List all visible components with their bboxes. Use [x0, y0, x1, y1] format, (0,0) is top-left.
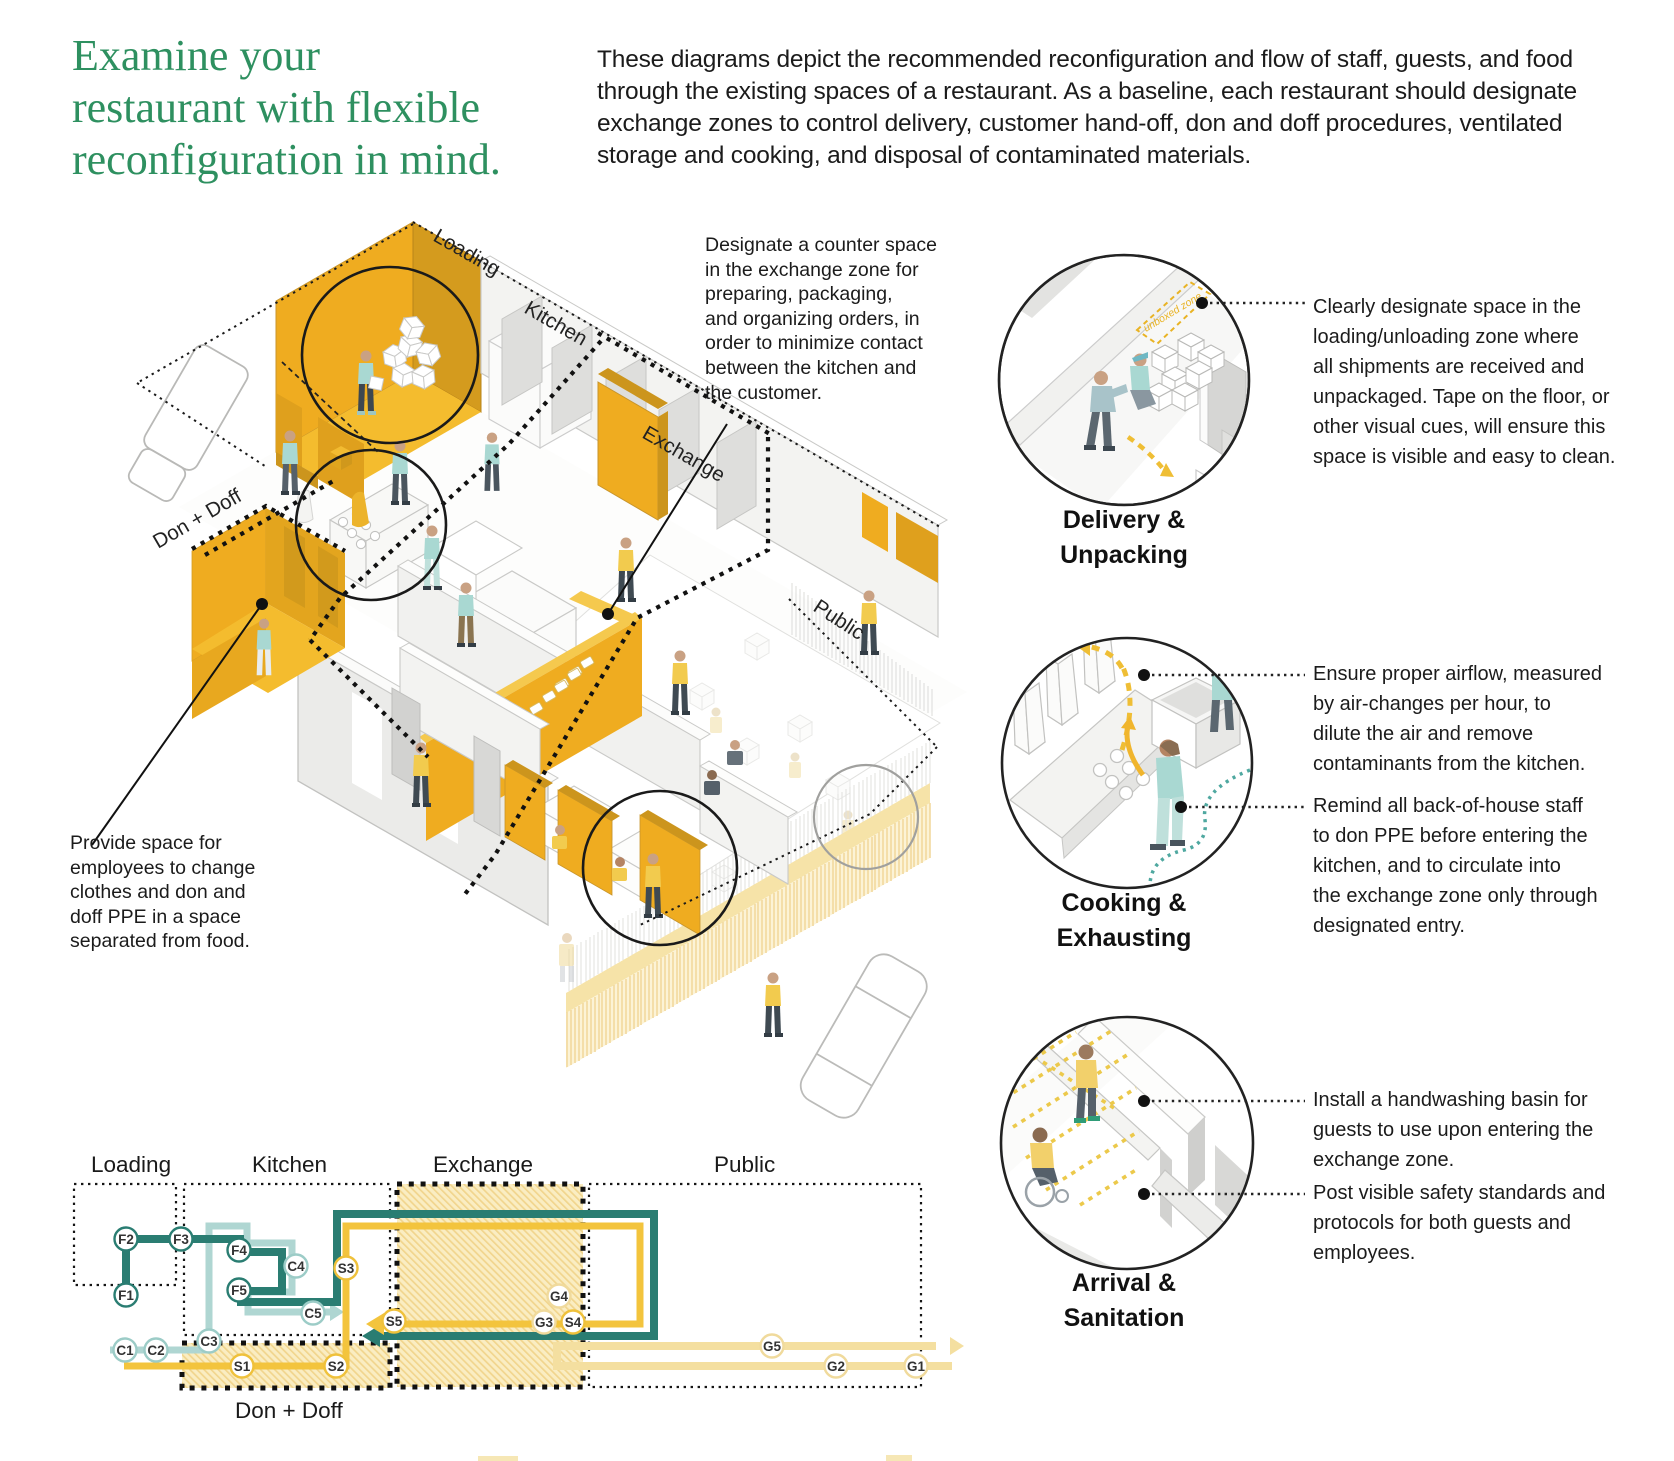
svg-text:F5: F5: [231, 1283, 247, 1298]
svg-text:G3: G3: [535, 1315, 554, 1330]
svg-text:G2: G2: [827, 1359, 845, 1374]
svg-text:C4: C4: [287, 1259, 305, 1274]
svg-text:Loading: Loading: [91, 1152, 171, 1177]
svg-text:S5: S5: [386, 1314, 403, 1329]
svg-text:G5: G5: [763, 1339, 782, 1354]
svg-text:Kitchen: Kitchen: [252, 1152, 327, 1177]
svg-text:F4: F4: [231, 1243, 247, 1258]
svg-text:S4: S4: [565, 1315, 582, 1330]
svg-text:C5: C5: [304, 1306, 322, 1321]
svg-text:Public: Public: [714, 1152, 775, 1177]
svg-text:C3: C3: [200, 1334, 218, 1349]
svg-text:S3: S3: [338, 1261, 355, 1276]
svg-text:G4: G4: [550, 1289, 569, 1304]
svg-text:C2: C2: [147, 1343, 164, 1358]
svg-text:Don + Doff: Don + Doff: [235, 1398, 344, 1423]
svg-text:F2: F2: [118, 1232, 134, 1247]
svg-text:S1: S1: [234, 1359, 251, 1374]
svg-text:F3: F3: [173, 1232, 189, 1247]
svg-text:Exchange: Exchange: [433, 1152, 533, 1177]
svg-text:S2: S2: [328, 1359, 345, 1374]
svg-text:C1: C1: [116, 1343, 134, 1358]
svg-text:G1: G1: [907, 1359, 926, 1374]
svg-text:F1: F1: [118, 1288, 134, 1303]
